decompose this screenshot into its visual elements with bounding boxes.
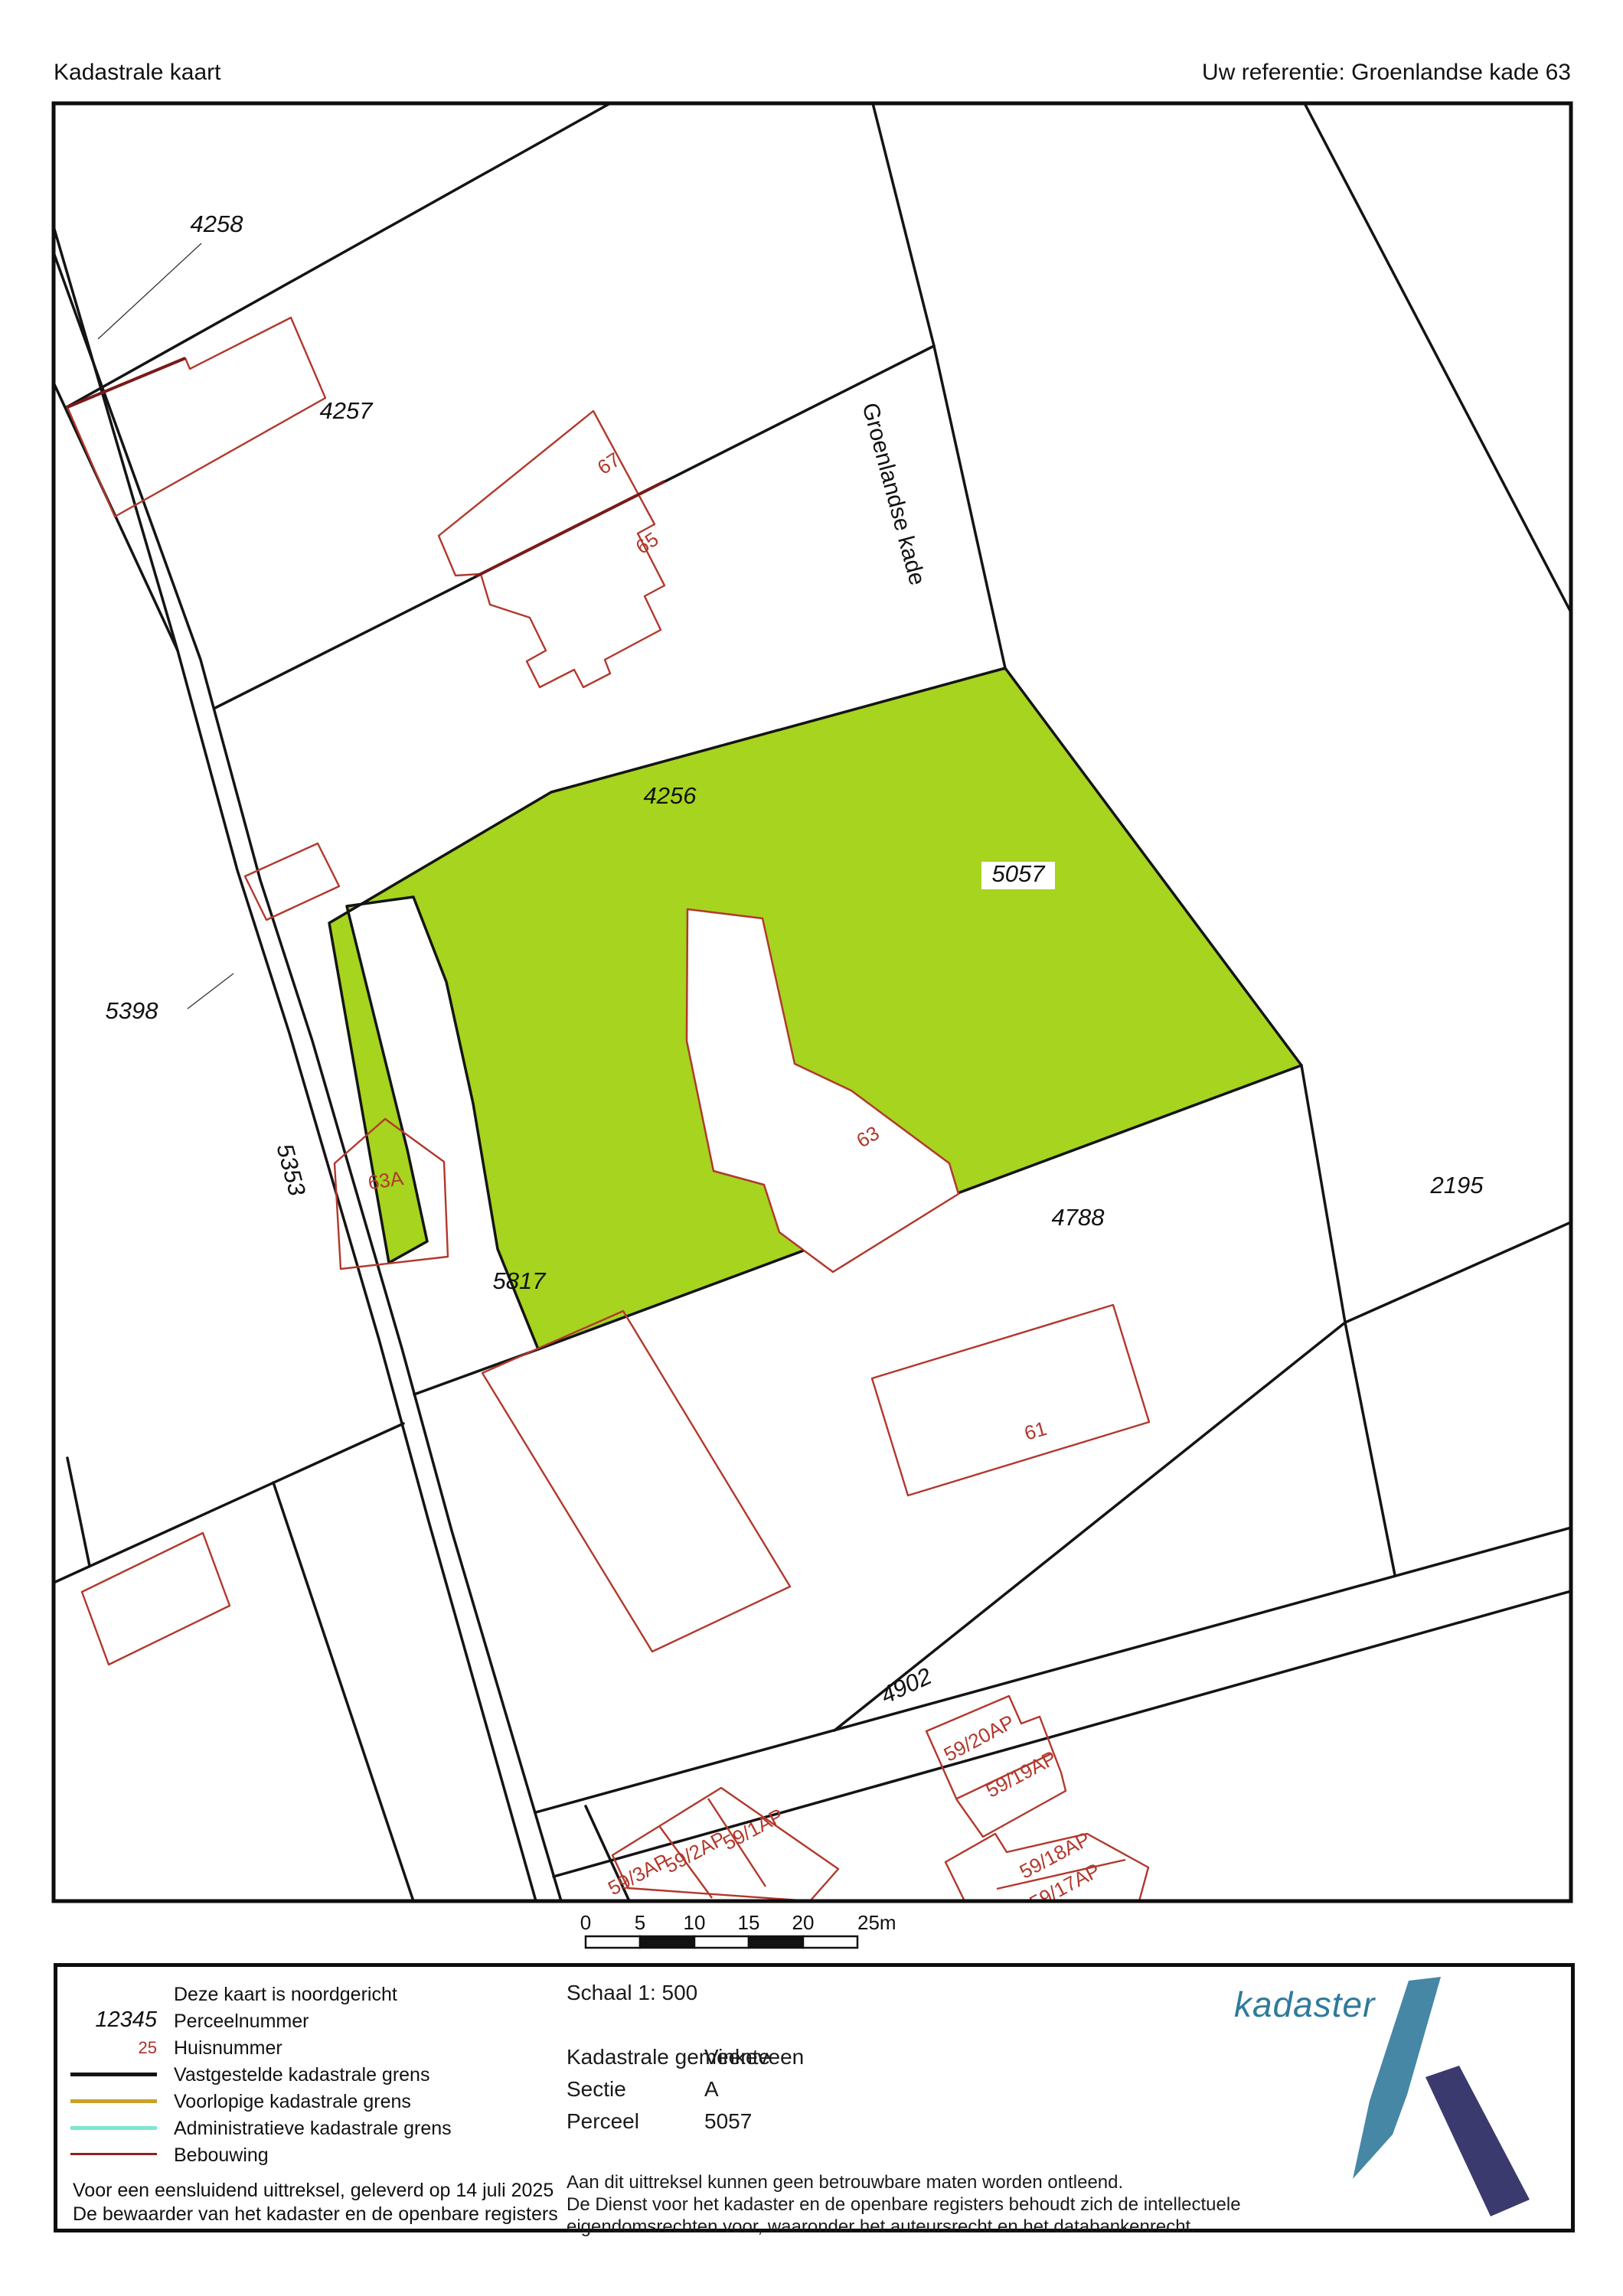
- kadaster-logo-icon: [0, 0, 1623, 2296]
